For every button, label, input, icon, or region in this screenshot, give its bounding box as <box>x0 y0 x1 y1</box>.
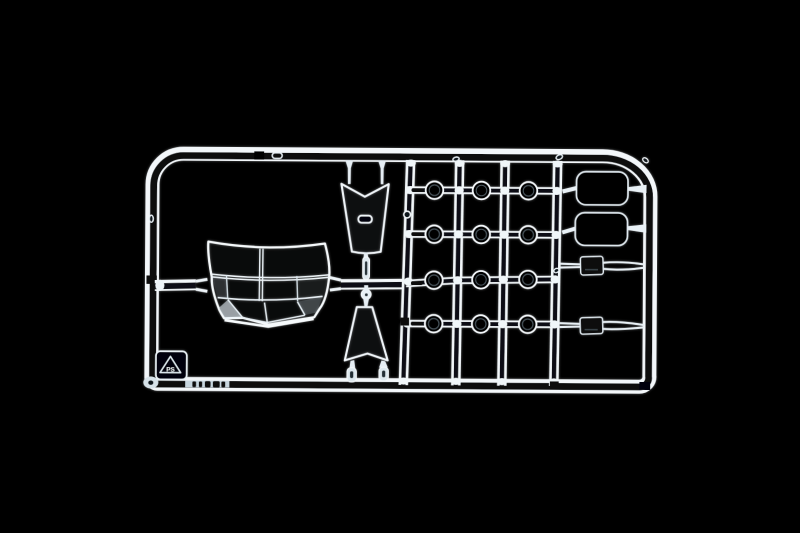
svg-text:PS: PS <box>166 366 175 373</box>
